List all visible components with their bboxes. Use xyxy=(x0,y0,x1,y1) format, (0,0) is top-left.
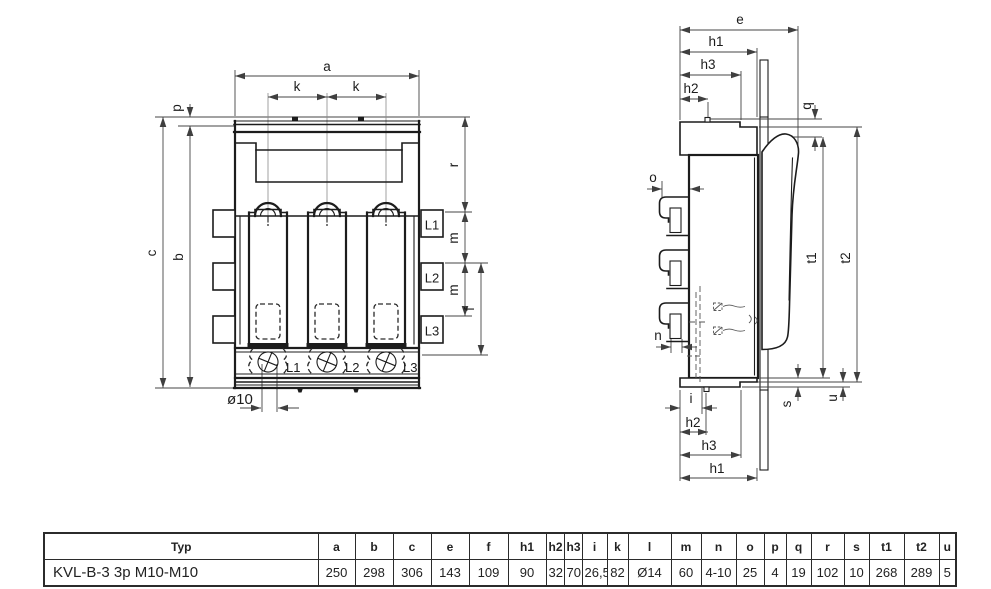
tab-label-l1: L1 xyxy=(425,218,439,233)
tab-label-l3: L3 xyxy=(425,324,439,339)
dim-label-h3-bottom: h3 xyxy=(701,438,716,453)
fuse-carriers xyxy=(248,203,407,348)
dim-label-h1-bottom: h1 xyxy=(709,461,724,476)
value-cell: 102 xyxy=(811,560,844,587)
dim-label-f: f xyxy=(462,307,477,311)
value-cell: 32 xyxy=(546,560,564,587)
dim-label-k1: k xyxy=(294,79,301,94)
col-header: h1 xyxy=(508,533,546,560)
dim-label-t2: t2 xyxy=(838,252,853,263)
side-terminal-hooks xyxy=(660,197,690,342)
col-header: f xyxy=(469,533,508,560)
dim-label-q: q xyxy=(799,102,814,110)
dim-label-m2: m xyxy=(446,284,461,295)
col-header: k xyxy=(607,533,628,560)
dim-label-k2: k xyxy=(353,79,360,94)
terminal-screws xyxy=(249,349,406,376)
value-cell: 306 xyxy=(393,560,431,587)
dim-label-s: s xyxy=(779,400,794,407)
dim-label-dia10: ø10 xyxy=(227,391,253,408)
value-cell: Ø14 xyxy=(628,560,671,587)
dim-label-i: i xyxy=(690,391,693,406)
dim-label-n: n xyxy=(654,328,662,343)
col-header: p xyxy=(764,533,786,560)
col-header: i xyxy=(582,533,607,560)
dim-label-r: r xyxy=(446,162,461,167)
dim-label-o: o xyxy=(649,170,657,185)
value-cell: 4 xyxy=(764,560,786,587)
col-header: o xyxy=(736,533,764,560)
value-cell: 250 xyxy=(318,560,355,587)
col-header-typ: Typ xyxy=(44,533,318,560)
col-header: h3 xyxy=(564,533,582,560)
table-header-row: Typ a b c e f h1 h2 h3 i k l m n o p q r… xyxy=(44,533,956,560)
col-header: c xyxy=(393,533,431,560)
terminal-label-l1: L1 xyxy=(286,360,300,375)
col-header: t2 xyxy=(904,533,939,560)
col-header: e xyxy=(431,533,469,560)
dim-label-c: c xyxy=(144,249,159,256)
value-cell: 4-10 xyxy=(701,560,736,587)
side-body xyxy=(680,118,758,392)
dim-label-h1-top: h1 xyxy=(708,34,723,49)
dim-label-t1: t1 xyxy=(804,252,819,263)
value-cell: 70 xyxy=(564,560,582,587)
dim-label-h2-top: h2 xyxy=(683,81,698,96)
table-row: KVL-B-3 3p M10-M10 250 298 306 143 109 9… xyxy=(44,560,956,587)
dim-label-e: e xyxy=(736,12,744,27)
col-header: n xyxy=(701,533,736,560)
col-header: q xyxy=(786,533,811,560)
value-cell: 143 xyxy=(431,560,469,587)
col-header: b xyxy=(355,533,393,560)
value-cell: 26,5 xyxy=(582,560,607,587)
dim-label-b: b xyxy=(171,253,186,261)
operating-handle xyxy=(762,134,799,350)
value-cell: 289 xyxy=(904,560,939,587)
side-view: e h1 h3 h2 q o n i h2 h3 h1 s u t1 t2 xyxy=(647,12,862,481)
type-name-cell: KVL-B-3 3p M10-M10 xyxy=(44,560,318,587)
technical-drawing-page: a k k p c b r m m f ø10 L1 L2 L3 L1 L2 L… xyxy=(0,0,991,589)
terminal-label-l2: L2 xyxy=(345,360,359,375)
dim-label-h3-top: h3 xyxy=(700,57,715,72)
col-header: l xyxy=(628,533,671,560)
col-header: m xyxy=(671,533,701,560)
value-cell: 10 xyxy=(844,560,869,587)
col-header: u xyxy=(939,533,956,560)
drawing-canvas: a k k p c b r m m f ø10 L1 L2 L3 L1 L2 L… xyxy=(0,0,991,520)
dim-label-u: u xyxy=(825,394,840,402)
value-cell: 82 xyxy=(607,560,628,587)
value-cell: 298 xyxy=(355,560,393,587)
terminal-label-l3: L3 xyxy=(403,360,417,375)
col-header: s xyxy=(844,533,869,560)
dim-label-m1: m xyxy=(446,232,461,243)
dim-label-h2-bottom: h2 xyxy=(685,415,700,430)
value-cell: 109 xyxy=(469,560,508,587)
dim-label-p: p xyxy=(169,104,184,112)
dim-label-a: a xyxy=(323,59,331,74)
connection-tabs xyxy=(213,210,443,343)
value-cell: 25 xyxy=(736,560,764,587)
tab-label-l2: L2 xyxy=(425,271,439,286)
value-cell: 5 xyxy=(939,560,956,587)
value-cell: 60 xyxy=(671,560,701,587)
value-cell: 19 xyxy=(786,560,811,587)
col-header: r xyxy=(811,533,844,560)
value-cell: 90 xyxy=(508,560,546,587)
col-header: h2 xyxy=(546,533,564,560)
col-header: a xyxy=(318,533,355,560)
value-cell: 268 xyxy=(869,560,904,587)
front-view: a k k p c b r m m f ø10 L1 L2 L3 L1 L2 L… xyxy=(144,59,488,412)
dimension-table: Typ a b c e f h1 h2 h3 i k l m n o p q r… xyxy=(43,532,957,587)
col-header: t1 xyxy=(869,533,904,560)
